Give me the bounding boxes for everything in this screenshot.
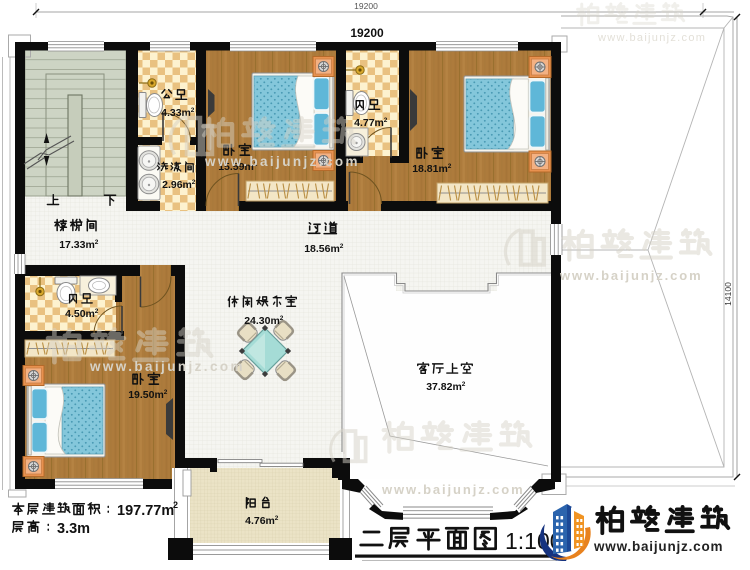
svg-text:18.81m: 18.81m [412, 163, 448, 175]
svg-text:www.baijunjz.com: www.baijunjz.com [204, 154, 360, 169]
svg-text:www.baijunjz.com: www.baijunjz.com [381, 482, 525, 497]
svg-text:www.baijunjz.com: www.baijunjz.com [89, 359, 245, 374]
svg-text:2: 2 [164, 389, 168, 396]
svg-text:17.33m: 17.33m [59, 239, 95, 251]
svg-text:19.50m: 19.50m [128, 389, 164, 401]
svg-text:18.56m: 18.56m [304, 243, 340, 255]
svg-text:2: 2 [462, 381, 466, 388]
svg-text:2: 2 [192, 179, 196, 186]
svg-text:4.50m: 4.50m [65, 308, 95, 320]
svg-text:3.3m: 3.3m [57, 521, 90, 537]
svg-text:4.76m: 4.76m [245, 515, 275, 527]
svg-text:4.77m: 4.77m [354, 117, 384, 129]
svg-text:14100: 14100 [723, 282, 733, 306]
svg-text:19200: 19200 [354, 1, 378, 11]
svg-text:2: 2 [448, 163, 452, 170]
svg-text:www.baijunjz.com: www.baijunjz.com [559, 268, 703, 283]
svg-text:2: 2 [95, 308, 99, 315]
svg-text:2: 2 [340, 243, 344, 250]
svg-text:2: 2 [191, 107, 195, 114]
svg-text:2: 2 [275, 515, 279, 522]
svg-text:www.baijunjz.com: www.baijunjz.com [597, 32, 706, 44]
svg-text:2: 2 [173, 500, 178, 510]
svg-text:2.96m: 2.96m [162, 179, 192, 191]
svg-text:197.77m: 197.77m [117, 503, 174, 519]
svg-text:www.baijunjz.com: www.baijunjz.com [593, 539, 723, 554]
svg-text:2: 2 [384, 117, 388, 124]
svg-text:24.30m: 24.30m [244, 315, 280, 327]
svg-text:2: 2 [280, 315, 284, 322]
svg-text:19200: 19200 [350, 26, 384, 40]
svg-text:2: 2 [95, 239, 99, 246]
svg-text:37.82m: 37.82m [426, 381, 462, 393]
